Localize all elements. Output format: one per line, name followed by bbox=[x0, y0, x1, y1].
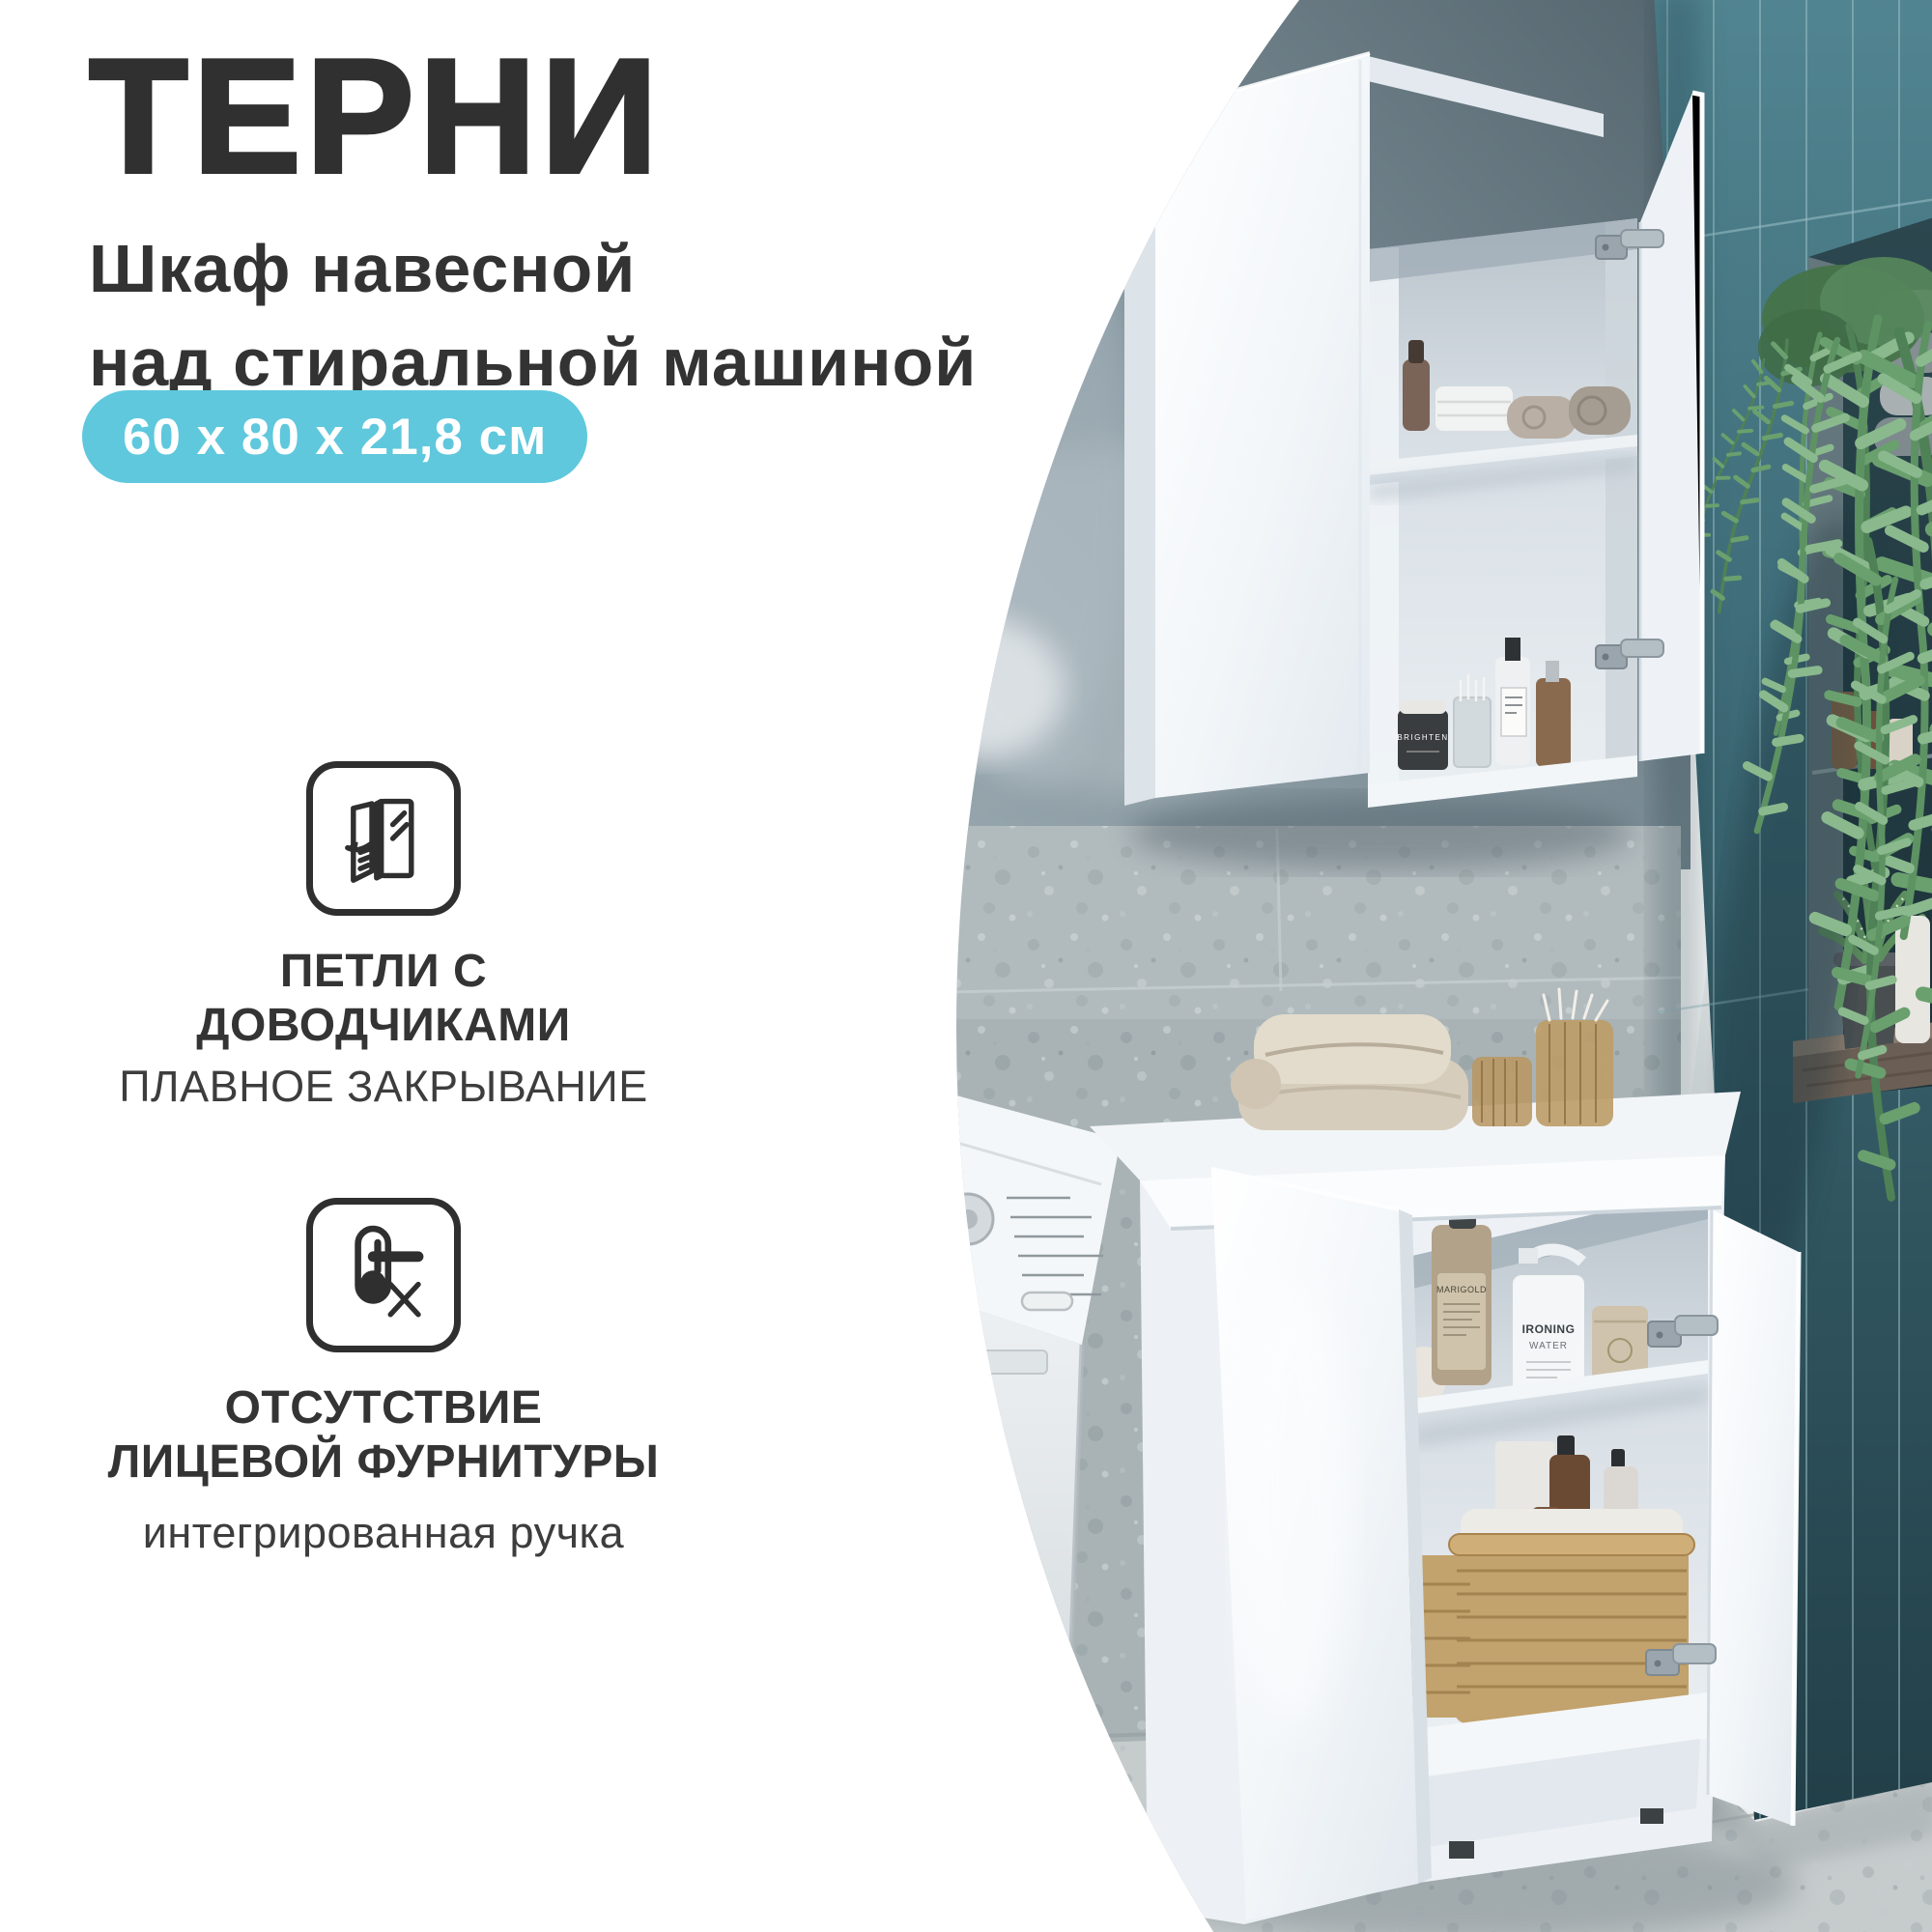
rolled-towel-taupe bbox=[1507, 396, 1577, 439]
feature-title-line-2: ЛИЦЕВОЙ ФУРНИТУРЫ bbox=[94, 1435, 673, 1490]
washer-dispenser bbox=[966, 1350, 1047, 1374]
feature-title-line-1: ОТСУТСТВИЕ bbox=[94, 1381, 673, 1435]
floor-cabinet-right-door bbox=[1708, 1209, 1799, 1826]
jar-label: BRIGHTEN bbox=[1397, 733, 1448, 742]
amber-pump-bottle bbox=[1536, 678, 1571, 767]
glass-with-swabs bbox=[1454, 697, 1491, 767]
product-card: BRIGHTEN bbox=[0, 0, 1932, 1932]
cabinet-foot bbox=[1640, 1808, 1663, 1824]
feature-subtitle: ПЛАВНОЕ ЗАКРЫВАНИЕ bbox=[94, 1062, 673, 1112]
header: ТЕРНИ Шкаф навесной над стиральной машин… bbox=[89, 35, 1151, 409]
soft-close-hinge-icon bbox=[306, 761, 461, 916]
washer-foot bbox=[1045, 1731, 1076, 1772]
feature-subtitle: интегрированная ручка bbox=[94, 1508, 673, 1558]
wall-cabinet-left-door bbox=[1124, 53, 1370, 806]
feature-soft-close: ПЕТЛИ С ДОВОДЧИКАМИ ПЛАВНОЕ ЗАКРЫВАНИЕ bbox=[94, 761, 673, 1112]
feature-title: ОТСУТСТВИЕ ЛИЦЕВОЙ ФУРНИТУРЫ bbox=[94, 1381, 673, 1489]
product-subtitle: Шкаф навесной над стиральной машиной bbox=[89, 222, 1151, 409]
glass-jar-with-swabs bbox=[1536, 1020, 1613, 1126]
spray-bottle bbox=[1403, 359, 1430, 431]
cabinet-foot bbox=[1449, 1841, 1474, 1859]
dimensions-text: 60 x 80 x 21,8 см bbox=[123, 408, 547, 467]
cabinet-door-arrow-glyph bbox=[326, 781, 441, 896]
page-title: ТЕРНИ bbox=[89, 35, 1151, 197]
feature-no-hardware: ОТСУТСТВИЕ ЛИЦЕВОЙ ФУРНИТУРЫ интегрирова… bbox=[94, 1198, 673, 1558]
subtitle-line-1: Шкаф навесной bbox=[89, 222, 1151, 316]
floor-cabinet: MARIGOLD IRONING WATER bbox=[1090, 989, 1799, 1932]
washer-button bbox=[1022, 1293, 1072, 1310]
feature-title: ПЕТЛИ С ДОВОДЧИКАМИ bbox=[94, 945, 673, 1052]
integrated-handle-glyph bbox=[326, 1217, 441, 1333]
wall-cabinet-shadow bbox=[1130, 796, 1633, 869]
floor-cabinet-left-door bbox=[1211, 1169, 1432, 1920]
towel-on-top bbox=[1231, 1014, 1468, 1130]
spray-label-line1: IRONING bbox=[1522, 1322, 1576, 1336]
dimensions-badge: 60 x 80 x 21,8 см bbox=[82, 390, 587, 483]
folded-towel-white bbox=[1435, 386, 1513, 431]
bottle-label: MARIGOLD bbox=[1436, 1285, 1487, 1294]
mirror-light bbox=[887, 616, 1065, 759]
no-front-hardware-icon bbox=[306, 1198, 461, 1352]
spray-label-line2: WATER bbox=[1529, 1341, 1568, 1351]
